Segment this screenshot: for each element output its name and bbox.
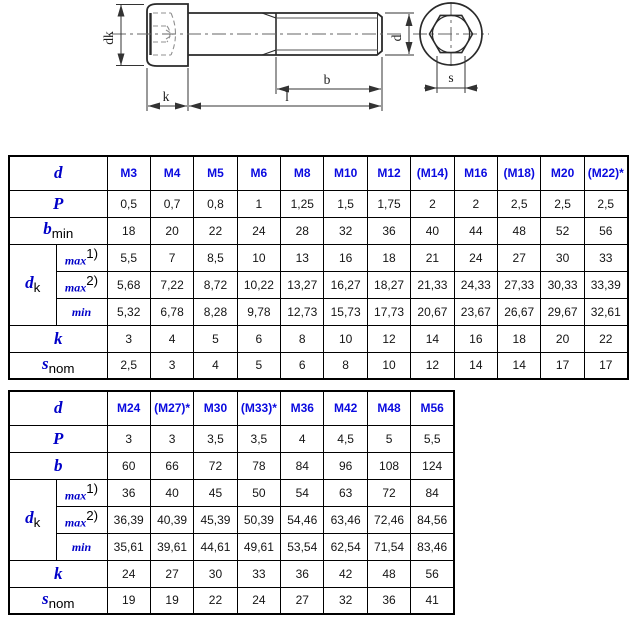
row-label-cell: snom — [9, 352, 107, 379]
value-cell: 15,73 — [324, 298, 367, 325]
size-column-header: (M14) — [411, 156, 454, 190]
row-label-subscript: nom — [49, 361, 75, 376]
size-column-header: M20 — [541, 156, 584, 190]
value-cell: 72,46 — [367, 506, 410, 533]
row-label-superscript: 2) — [86, 508, 98, 523]
size-column-header: (M27)* — [150, 391, 193, 425]
value-cell: 24 — [454, 244, 497, 271]
row-label: min — [72, 540, 91, 554]
row-label-cell: P — [9, 190, 107, 217]
row-label: k — [54, 329, 63, 348]
value-cell: 1,25 — [281, 190, 324, 217]
value-cell: 18 — [367, 244, 410, 271]
value-cell: 33 — [584, 244, 627, 271]
value-cell: 63,46 — [324, 506, 367, 533]
value-cell: 17,73 — [367, 298, 410, 325]
value-cell: 84 — [281, 452, 324, 479]
header-row: dM24(M27)*M30(M33)*M36M42M48M56 — [9, 391, 454, 425]
size-column-header: M5 — [194, 156, 237, 190]
size-column-header: (M18) — [498, 156, 541, 190]
screw-technical-drawing: dk k l b d s — [0, 0, 635, 150]
value-cell: 27 — [150, 560, 193, 587]
sub-label-cell: max2) — [56, 271, 107, 298]
value-cell: 28 — [281, 217, 324, 244]
value-cell: 21 — [411, 244, 454, 271]
value-cell: 1,5 — [324, 190, 367, 217]
value-cell: 13 — [281, 244, 324, 271]
value-cell: 84 — [411, 479, 454, 506]
size-column-header: (M33)* — [237, 391, 280, 425]
row-label: max — [65, 515, 86, 529]
row-label-superscript: 1) — [86, 481, 98, 496]
side-view — [147, 4, 382, 66]
dimension-table-m3-m22: dM3M4M5M6M8M10M12(M14)M16(M18)M20(M22)*P… — [8, 155, 629, 380]
value-cell: 60 — [107, 452, 150, 479]
sub-label-cell: min — [56, 533, 107, 560]
row-label: d — [25, 273, 34, 292]
value-cell: 8 — [281, 325, 324, 352]
value-cell: 19 — [150, 587, 193, 614]
value-cell: 36 — [367, 587, 410, 614]
value-cell: 6 — [281, 352, 324, 379]
value-cell: 2 — [454, 190, 497, 217]
row-label: max — [65, 488, 86, 502]
value-cell: 45,39 — [194, 506, 237, 533]
value-cell: 3 — [107, 325, 150, 352]
value-cell: 20,67 — [411, 298, 454, 325]
value-cell: 48 — [498, 217, 541, 244]
row-label-cell: snom — [9, 587, 107, 614]
value-cell: 20 — [150, 217, 193, 244]
sub-label-cell: min — [56, 298, 107, 325]
size-column-header: M8 — [281, 156, 324, 190]
value-cell: 30 — [194, 560, 237, 587]
value-cell: 26,67 — [498, 298, 541, 325]
value-cell: 40 — [411, 217, 454, 244]
value-cell: 24 — [237, 217, 280, 244]
value-cell: 29,67 — [541, 298, 584, 325]
row-label-subscript: k — [34, 516, 41, 531]
row-label: s — [42, 589, 49, 608]
size-column-header: M10 — [324, 156, 367, 190]
row-label: b — [43, 219, 52, 238]
value-cell: 24 — [237, 587, 280, 614]
row-label-cell: k — [9, 560, 107, 587]
table-row: min35,6139,6144,6149,6153,5462,5471,5483… — [9, 533, 454, 560]
table-row: max2)36,3940,3945,3950,3954,4663,4672,46… — [9, 506, 454, 533]
row-label: max — [65, 280, 86, 294]
value-cell: 16,27 — [324, 271, 367, 298]
value-cell: 32,61 — [584, 298, 627, 325]
value-cell: 48 — [367, 560, 410, 587]
value-cell: 54,46 — [281, 506, 324, 533]
row-label: d — [25, 508, 34, 527]
value-cell: 36 — [107, 479, 150, 506]
row-label-cell: k — [9, 325, 107, 352]
value-cell: 24,33 — [454, 271, 497, 298]
size-column-header: (M22)* — [584, 156, 627, 190]
size-column-header: M24 — [107, 391, 150, 425]
value-cell: 0,5 — [107, 190, 150, 217]
value-cell: 53,54 — [281, 533, 324, 560]
row-label: b — [54, 456, 63, 475]
k-label: k — [163, 89, 170, 104]
row-label-cell: bmin — [9, 217, 107, 244]
table-row: k3456810121416182022 — [9, 325, 628, 352]
value-cell: 2,5 — [541, 190, 584, 217]
value-cell: 22 — [584, 325, 627, 352]
value-cell: 30,33 — [541, 271, 584, 298]
value-cell: 40 — [150, 479, 193, 506]
value-cell: 56 — [584, 217, 627, 244]
value-cell: 0,8 — [194, 190, 237, 217]
value-cell: 1,75 — [367, 190, 410, 217]
value-cell: 24 — [107, 560, 150, 587]
value-cell: 8,28 — [194, 298, 237, 325]
value-cell: 3 — [107, 425, 150, 452]
value-cell: 19 — [107, 587, 150, 614]
value-cell: 62,54 — [324, 533, 367, 560]
value-cell: 0,7 — [150, 190, 193, 217]
dimension-table-m24-m56: dM24(M27)*M30(M33)*M36M42M48M56P333,53,5… — [8, 390, 455, 615]
table-row: k2427303336424856 — [9, 560, 454, 587]
value-cell: 44,61 — [194, 533, 237, 560]
value-cell: 50 — [237, 479, 280, 506]
value-cell: 5,32 — [107, 298, 150, 325]
value-cell: 72 — [194, 452, 237, 479]
value-cell: 12,73 — [281, 298, 324, 325]
value-cell: 9,78 — [237, 298, 280, 325]
row-label-superscript: 1) — [86, 246, 98, 261]
value-cell: 8,5 — [194, 244, 237, 271]
value-cell: 32 — [324, 217, 367, 244]
value-cell: 18,27 — [367, 271, 410, 298]
value-cell: 10 — [324, 325, 367, 352]
row-label-subscript: nom — [49, 596, 75, 611]
row-label-superscript: 2) — [86, 273, 98, 288]
value-cell: 2 — [411, 190, 454, 217]
value-cell: 45 — [194, 479, 237, 506]
value-cell: 5,68 — [107, 271, 150, 298]
table-row: b606672788496108124 — [9, 452, 454, 479]
value-cell: 63 — [324, 479, 367, 506]
group-label-cell: dk — [9, 479, 56, 560]
table-row: dkmax1)3640455054637284 — [9, 479, 454, 506]
row-label-subscript: k — [34, 281, 41, 296]
table-row: snom1919222427323641 — [9, 587, 454, 614]
row-label: P — [53, 194, 63, 213]
datasheet-page: dk k l b d s dM3M4M5M6M8M10M12(M14)M16(M… — [0, 0, 635, 617]
size-column-header: M48 — [367, 391, 410, 425]
value-cell: 8 — [324, 352, 367, 379]
value-cell: 52 — [541, 217, 584, 244]
size-column-header: M42 — [324, 391, 367, 425]
value-cell: 108 — [367, 452, 410, 479]
value-cell: 7,22 — [150, 271, 193, 298]
value-cell: 4,5 — [324, 425, 367, 452]
size-column-header: M30 — [194, 391, 237, 425]
row-label-subscript: min — [52, 227, 73, 242]
value-cell: 27 — [498, 244, 541, 271]
value-cell: 5 — [237, 352, 280, 379]
value-cell: 35,61 — [107, 533, 150, 560]
b-label: b — [324, 72, 331, 87]
value-cell: 23,67 — [454, 298, 497, 325]
value-cell: 33 — [237, 560, 280, 587]
header-row: dM3M4M5M6M8M10M12(M14)M16(M18)M20(M22)* — [9, 156, 628, 190]
value-cell: 84,56 — [411, 506, 454, 533]
value-cell: 14 — [498, 352, 541, 379]
value-cell: 66 — [150, 452, 193, 479]
row-label: s — [42, 354, 49, 373]
value-cell: 10 — [367, 352, 410, 379]
value-cell: 21,33 — [411, 271, 454, 298]
value-cell: 30 — [541, 244, 584, 271]
value-cell: 27 — [281, 587, 324, 614]
value-cell: 40,39 — [150, 506, 193, 533]
table-row: dkmax1)5,578,5101316182124273033 — [9, 244, 628, 271]
value-cell: 13,27 — [281, 271, 324, 298]
size-column-header: M3 — [107, 156, 150, 190]
s-label: s — [448, 70, 453, 85]
value-cell: 14 — [411, 325, 454, 352]
value-cell: 8,72 — [194, 271, 237, 298]
corner-label: d — [54, 398, 63, 417]
value-cell: 12 — [411, 352, 454, 379]
value-cell: 2,5 — [107, 352, 150, 379]
value-cell: 10 — [237, 244, 280, 271]
value-cell: 7 — [150, 244, 193, 271]
sub-label-cell: max2) — [56, 506, 107, 533]
value-cell: 1 — [237, 190, 280, 217]
value-cell: 50,39 — [237, 506, 280, 533]
value-cell: 2,5 — [584, 190, 627, 217]
value-cell: 16 — [324, 244, 367, 271]
value-cell: 36 — [281, 560, 324, 587]
value-cell: 14 — [454, 352, 497, 379]
value-cell: 4 — [281, 425, 324, 452]
value-cell: 32 — [324, 587, 367, 614]
size-column-header: M12 — [367, 156, 410, 190]
value-cell: 44 — [454, 217, 497, 244]
row-label: max — [65, 253, 86, 267]
row-label-cell: b — [9, 452, 107, 479]
value-cell: 54 — [281, 479, 324, 506]
table-row: snom2,534568101214141717 — [9, 352, 628, 379]
row-label: k — [54, 564, 63, 583]
value-cell: 20 — [541, 325, 584, 352]
value-cell: 5 — [194, 325, 237, 352]
value-cell: 124 — [411, 452, 454, 479]
size-column-header: M36 — [281, 391, 324, 425]
size-column-header: M6 — [237, 156, 280, 190]
group-label-cell: dk — [9, 244, 56, 325]
l-label: l — [285, 89, 289, 104]
table-row: bmin182022242832364044485256 — [9, 217, 628, 244]
value-cell: 3,5 — [194, 425, 237, 452]
sub-label-cell: max1) — [56, 244, 107, 271]
value-cell: 2,5 — [498, 190, 541, 217]
value-cell: 6 — [237, 325, 280, 352]
value-cell: 18 — [498, 325, 541, 352]
value-cell: 49,61 — [237, 533, 280, 560]
corner-label: d — [54, 163, 63, 182]
value-cell: 72 — [367, 479, 410, 506]
value-cell: 4 — [150, 325, 193, 352]
value-cell: 27,33 — [498, 271, 541, 298]
value-cell: 56 — [411, 560, 454, 587]
row-label-cell: P — [9, 425, 107, 452]
value-cell: 17 — [541, 352, 584, 379]
value-cell: 33,39 — [584, 271, 627, 298]
row-label: min — [72, 305, 91, 319]
value-cell: 5 — [367, 425, 410, 452]
value-cell: 17 — [584, 352, 627, 379]
table-row: min5,326,788,289,7812,7315,7317,7320,672… — [9, 298, 628, 325]
value-cell: 36,39 — [107, 506, 150, 533]
size-column-header: M56 — [411, 391, 454, 425]
size-column-header: M4 — [150, 156, 193, 190]
value-cell: 96 — [324, 452, 367, 479]
row-label: P — [53, 429, 63, 448]
value-cell: 3 — [150, 352, 193, 379]
table-row: P333,53,544,555,5 — [9, 425, 454, 452]
value-cell: 3,5 — [237, 425, 280, 452]
value-cell: 83,46 — [411, 533, 454, 560]
table-row: P0,50,70,811,251,51,75222,52,52,5 — [9, 190, 628, 217]
value-cell: 36 — [367, 217, 410, 244]
value-cell: 16 — [454, 325, 497, 352]
corner-cell: d — [9, 156, 107, 190]
size-column-header: M16 — [454, 156, 497, 190]
value-cell: 18 — [107, 217, 150, 244]
value-cell: 39,61 — [150, 533, 193, 560]
value-cell: 3 — [150, 425, 193, 452]
value-cell: 22 — [194, 217, 237, 244]
corner-cell: d — [9, 391, 107, 425]
value-cell: 12 — [367, 325, 410, 352]
table-row: max2)5,687,228,7210,2213,2716,2718,2721,… — [9, 271, 628, 298]
dk-label: dk — [101, 31, 116, 45]
value-cell: 5,5 — [411, 425, 454, 452]
d-label: d — [389, 34, 404, 41]
value-cell: 6,78 — [150, 298, 193, 325]
value-cell: 41 — [411, 587, 454, 614]
value-cell: 5,5 — [107, 244, 150, 271]
value-cell: 71,54 — [367, 533, 410, 560]
value-cell: 10,22 — [237, 271, 280, 298]
value-cell: 42 — [324, 560, 367, 587]
value-cell: 22 — [194, 587, 237, 614]
value-cell: 78 — [237, 452, 280, 479]
value-cell: 4 — [194, 352, 237, 379]
sub-label-cell: max1) — [56, 479, 107, 506]
